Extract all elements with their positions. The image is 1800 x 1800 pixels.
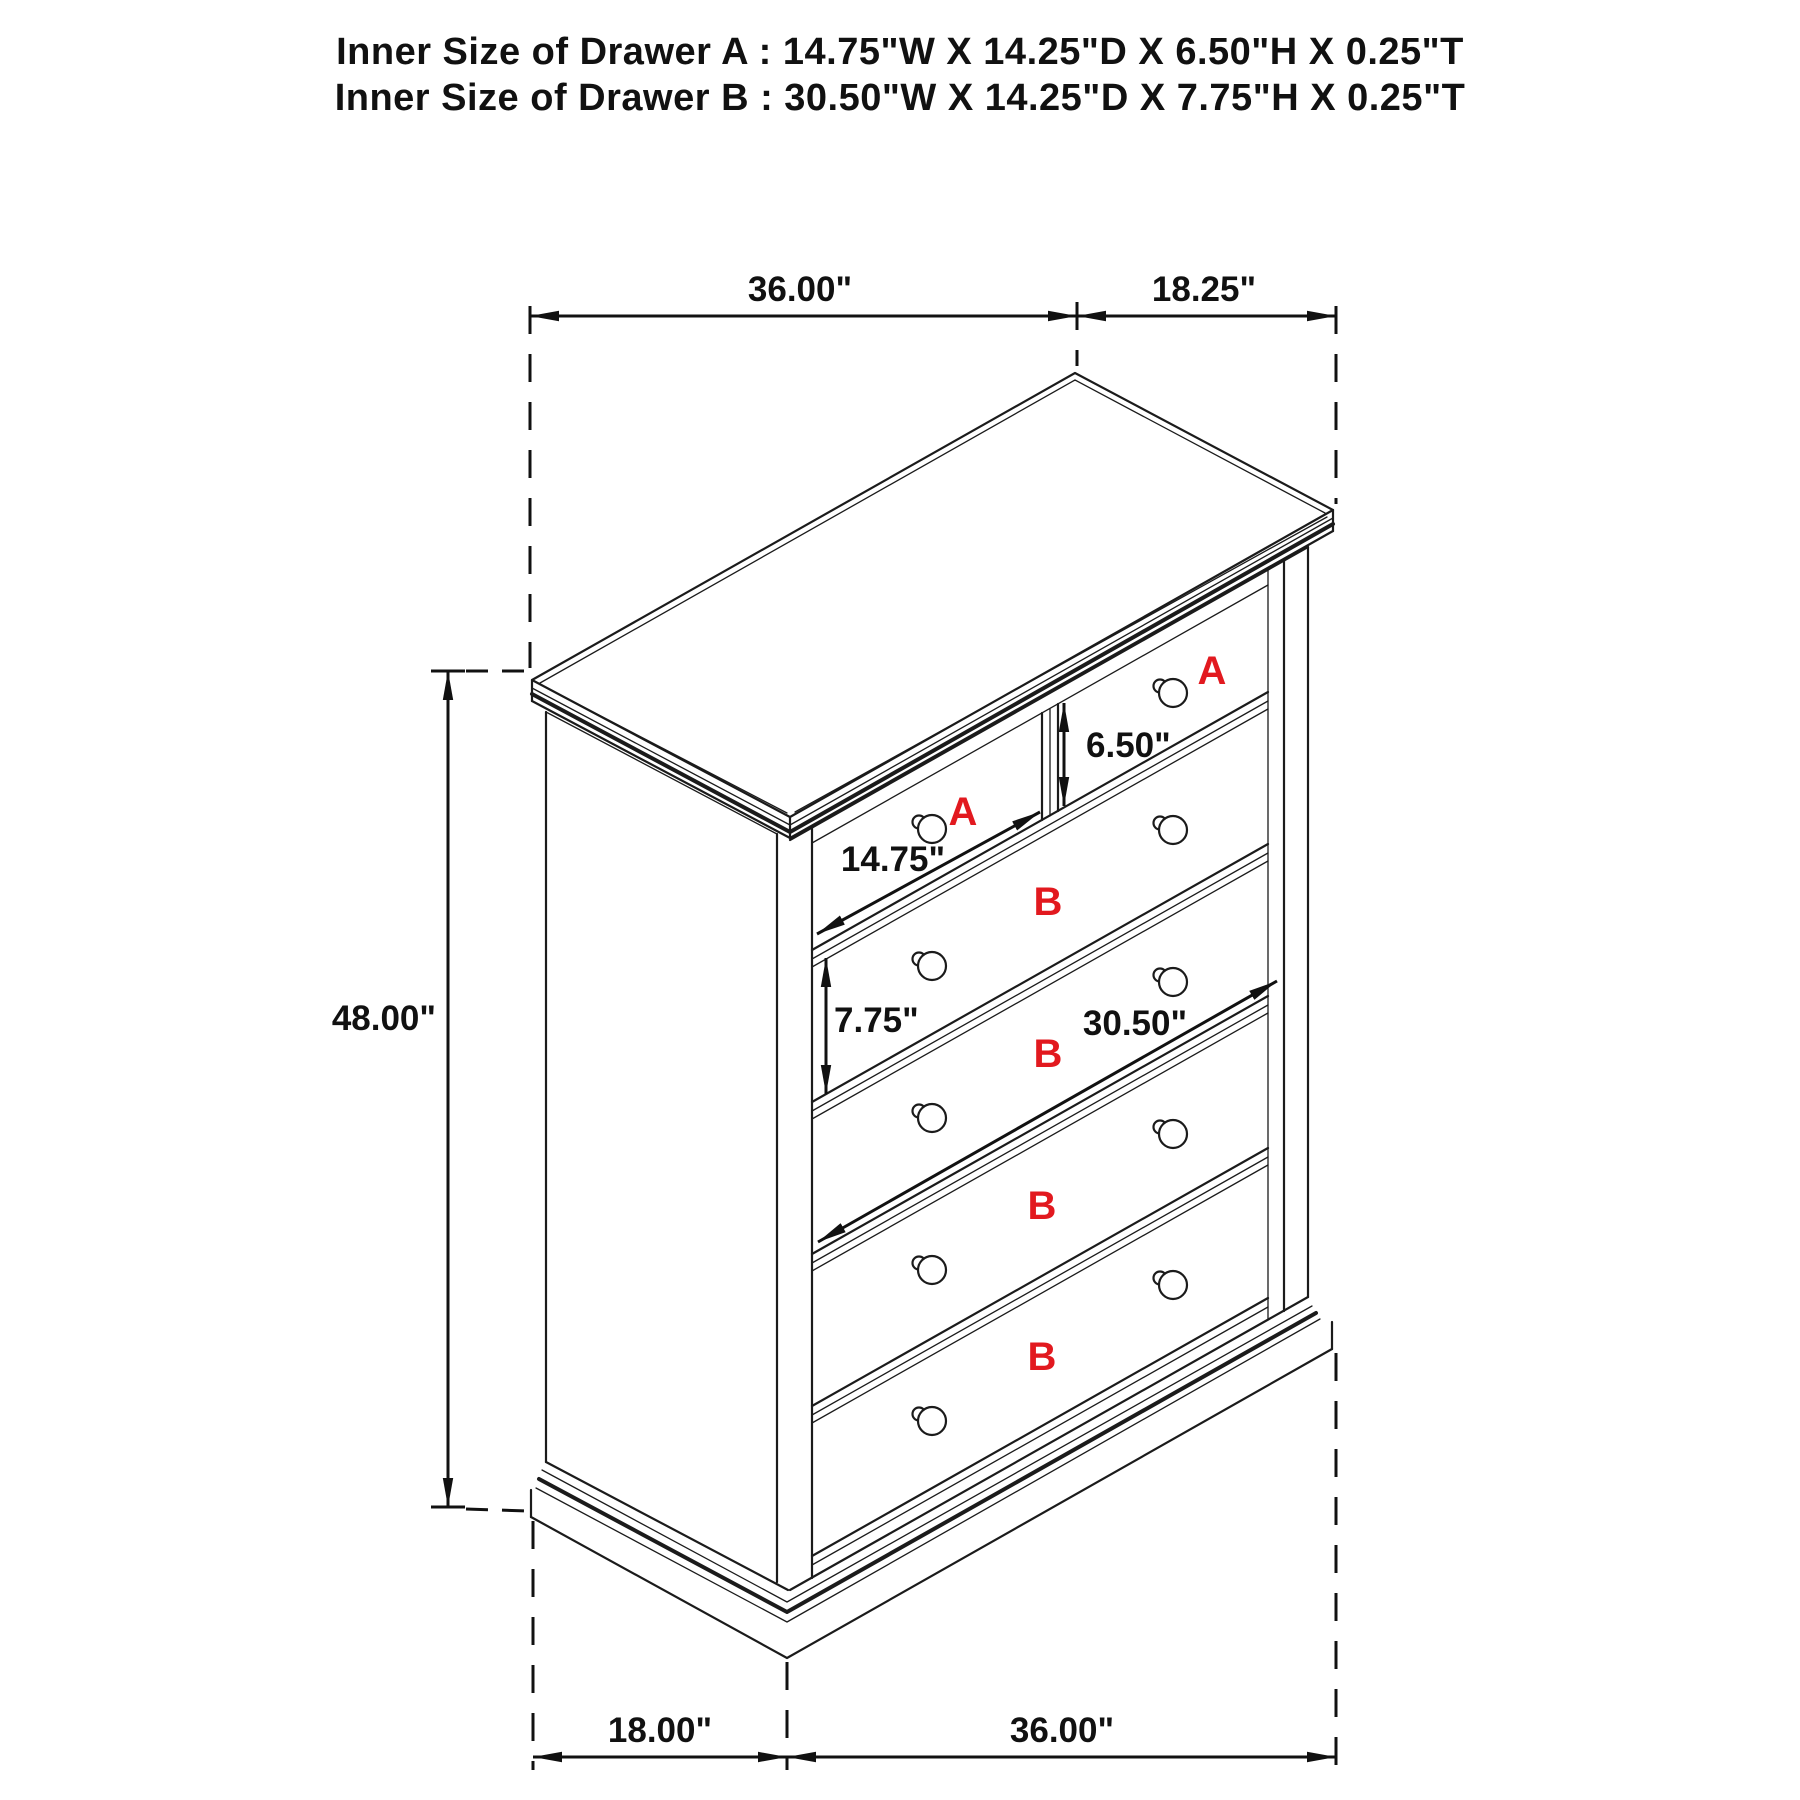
drawer-a-width-label: 14.75" (841, 840, 945, 879)
drawer-b1-label: B (1034, 880, 1063, 924)
drawer-b-height-label: 7.75" (834, 1001, 919, 1040)
drawer-knob (1154, 816, 1188, 844)
drawer-knob (1154, 1271, 1188, 1299)
center-stile (1042, 704, 1058, 820)
drawer-knob (1154, 968, 1188, 996)
chest-line-drawing: Inner Size of Drawer A : 14.75"W X 14.25… (0, 0, 1800, 1800)
diagram-title-line-1: Inner Size of Drawer A : 14.75"W X 14.25… (336, 31, 1464, 73)
drawer-b3-label: B (1028, 1184, 1057, 1228)
dimension-height: 48.00" (332, 671, 529, 1511)
drawer-a-height-label: 6.50" (1086, 726, 1171, 765)
diagram-title-line-2: Inner Size of Drawer B : 30.50"W X 14.25… (335, 77, 1466, 119)
bottom-depth-label: 18.00" (608, 1711, 712, 1750)
dresser-dimension-diagram: Inner Size of Drawer A : 14.75"W X 14.25… (0, 0, 1800, 1800)
drawer-knob (913, 815, 947, 843)
drawer-knob (913, 952, 947, 980)
height-label: 48.00" (332, 999, 436, 1038)
top-depth-label: 18.25" (1152, 270, 1256, 309)
drawer-knob (913, 1256, 947, 1284)
drawer-knob (913, 1104, 947, 1132)
drawer-b4-label: B (1028, 1335, 1057, 1379)
drawer-a-left-label: A (949, 790, 978, 834)
drawer-knob (1154, 679, 1188, 707)
bottom-width-label: 36.00" (1010, 1711, 1114, 1750)
drawer-b2-label: B (1034, 1032, 1063, 1076)
dimension-drawer-a: 6.50" 14.75" (817, 703, 1171, 934)
top-width-label: 36.00" (748, 270, 852, 309)
drawer-knob (1154, 1120, 1188, 1148)
drawer-knob (913, 1407, 947, 1435)
drawer-a-right-label: A (1198, 649, 1227, 693)
chest-left-side-panel (546, 712, 777, 1582)
dimension-top-width: 36.00" 18.25" (530, 270, 1336, 668)
base-moulding (531, 1306, 1332, 1658)
drawer-b-width-label: 30.50" (1083, 1004, 1187, 1043)
